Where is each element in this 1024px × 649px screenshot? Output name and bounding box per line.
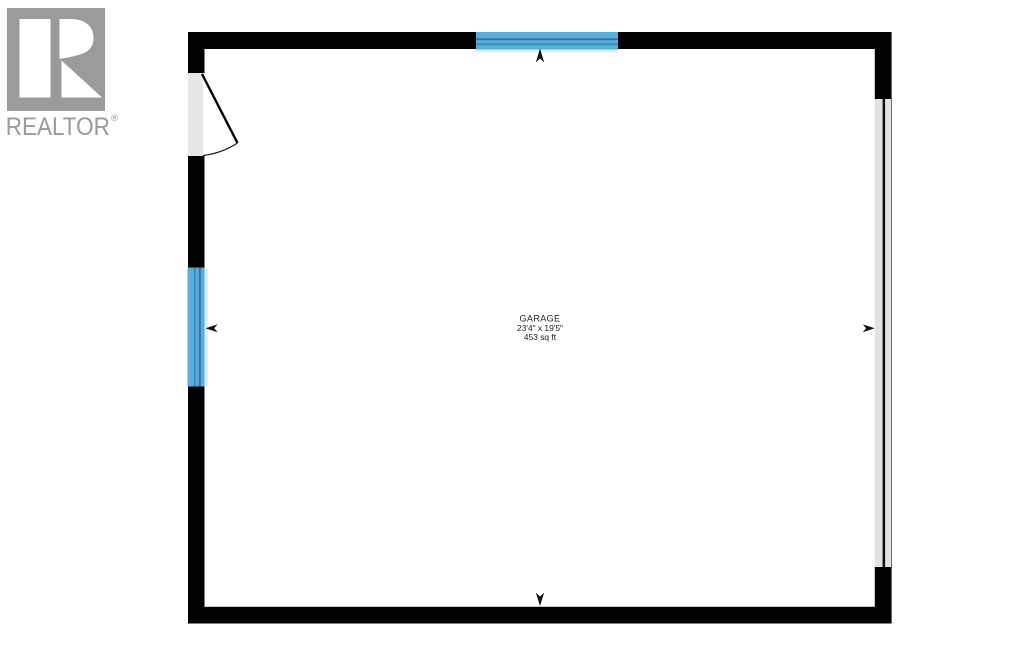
svg-text:REALTOR: REALTOR [6,113,110,141]
svg-text:453 sq ft: 453 sq ft [524,332,557,342]
svg-text:®: ® [111,113,118,124]
